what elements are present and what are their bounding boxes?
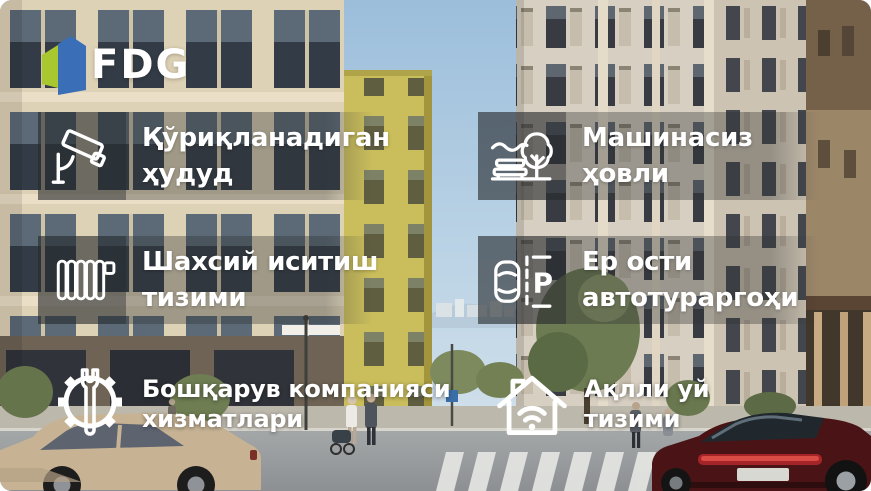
feature-management-services-line2: хизматлари — [142, 404, 450, 434]
feature-smart-home-line2: тизими — [584, 404, 709, 434]
feature-guarded-area-line1: Қўриқланадиган — [142, 120, 390, 156]
feature-management-services: Бошқарув компанияси хизматлари — [46, 360, 450, 448]
parking-icon: P — [478, 236, 566, 324]
feature-smart-home-line1: Ақлли уй — [584, 374, 709, 404]
fdg-logo-mark — [36, 30, 88, 100]
bench-tree-icon — [478, 112, 566, 200]
feature-personal-heating: Шахсий иситиш тизими — [38, 236, 372, 324]
feature-car-free-yard-line1: Машинасиз — [582, 120, 753, 156]
gear-wrench-icon — [46, 360, 134, 448]
feature-underground-parking-line2: автотураргоҳи — [582, 280, 798, 316]
feature-management-services-line1: Бошқарув компанияси — [142, 374, 450, 404]
feature-underground-parking: P Ер ости автотураргоҳи — [478, 236, 818, 324]
feature-guarded-area-line2: ҳудуд — [142, 156, 390, 192]
cctv-camera-icon — [38, 112, 126, 200]
feature-underground-parking-line1: Ер ости — [582, 244, 798, 280]
feature-personal-heating-line2: тизими — [142, 280, 378, 316]
feature-smart-home: Ақлли уй тизими — [488, 360, 709, 448]
radiator-icon — [38, 236, 126, 324]
promo-banner: FDG Қўриқланадиган ҳудуд — [0, 0, 871, 491]
feature-car-free-yard: Машинасиз ҳовли — [478, 112, 818, 200]
feature-personal-heating-line1: Шахсий иситиш — [142, 244, 378, 280]
fdg-logo-text: FDG — [91, 42, 190, 88]
fdg-logo: FDG — [36, 30, 190, 100]
smart-home-icon — [488, 360, 576, 448]
svg-text:P: P — [533, 266, 553, 299]
feature-guarded-area: Қўриқланадиган ҳудуд — [38, 112, 372, 200]
feature-car-free-yard-line2: ҳовли — [582, 156, 753, 192]
